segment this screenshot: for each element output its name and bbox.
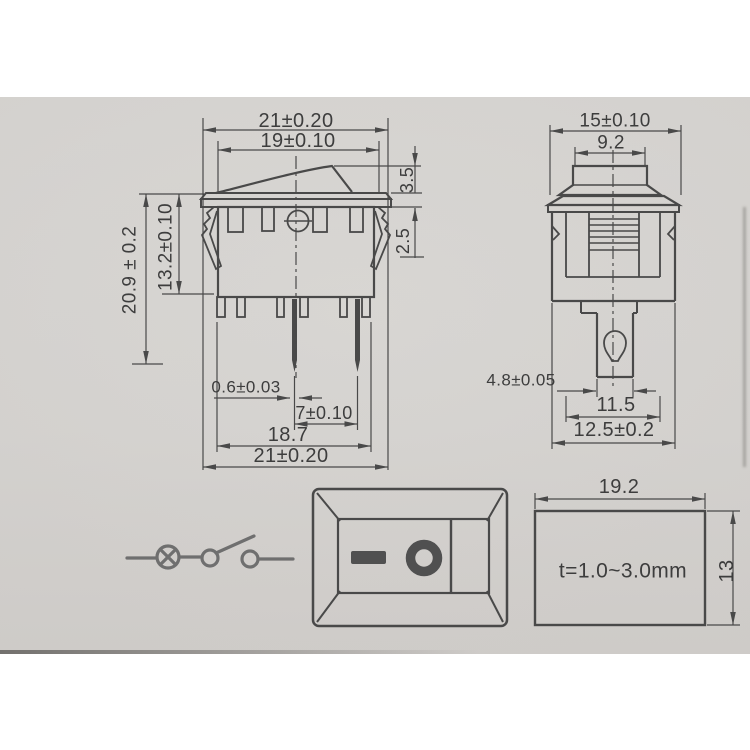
- dim-label-pin-pitch: 7±0.10: [295, 404, 352, 422]
- switch-contact: [242, 551, 258, 567]
- dim-label-body-width: 11.5: [596, 395, 635, 415]
- terminal-pin: [355, 299, 360, 372]
- body-slot: [228, 207, 243, 232]
- drawing-content: 21±0.20 19±0.10 3.5 2.5 20.9 ± 0.2 13.2±…: [0, 0, 750, 750]
- on-symbol: [351, 551, 386, 564]
- dim-label-flange-to-clip: 2.5: [394, 228, 412, 254]
- rocker-face-view: [313, 489, 507, 626]
- terminal-prong: [340, 297, 347, 317]
- dim-label-terminal-span: 18.7: [268, 425, 309, 445]
- dim-label-overall-width-side: 12.5±0.2: [574, 420, 655, 440]
- dim-label-overall-height: 20.9 ± 0.2: [121, 226, 140, 314]
- front-view-dimensions: [132, 118, 424, 470]
- side-body-ribs: [589, 219, 639, 250]
- dim-label-flange-width: 15±0.10: [579, 112, 650, 131]
- circuit-symbol: [127, 536, 293, 568]
- front-view: [132, 118, 424, 470]
- terminal-prong: [237, 297, 245, 317]
- dim-label-pin-thickness: 0.6±0.03: [211, 379, 280, 396]
- dim-label-body-depth: 13.2±0.10: [157, 203, 176, 291]
- panel-thickness-note: t=1.0~3.0mm: [559, 561, 687, 582]
- dim-label-rocker-height: 3.5: [398, 167, 416, 193]
- off-symbol: [411, 545, 438, 572]
- dim-label-cutout-width: 19.2: [599, 477, 640, 497]
- dim-label-terminal-tab-width: 4.8±0.05: [486, 372, 555, 389]
- rocker-actuator-profile: [216, 166, 352, 193]
- dim-label-cutout-height: 13: [717, 559, 737, 582]
- side-actuator: [559, 166, 661, 195]
- photographed-technical-drawing: 21±0.20 19±0.10 3.5 2.5 20.9 ± 0.2 13.2±…: [0, 0, 750, 750]
- body-slot: [350, 207, 363, 232]
- dim-label-overall-width-bottom: 21±0.20: [254, 446, 329, 466]
- body-slot: [262, 207, 274, 231]
- dim-label-actuator-width: 9.2: [597, 134, 625, 153]
- dim-label-rocker-width: 19±0.10: [261, 131, 336, 151]
- dim-label-overall-width-top: 21±0.20: [259, 111, 334, 131]
- body-slot: [313, 207, 327, 232]
- terminal-tab-hole: [604, 331, 626, 361]
- terminal-prong: [362, 297, 370, 317]
- terminal-prong: [217, 297, 225, 317]
- terminal-prong: [277, 297, 284, 317]
- terminal-prong: [300, 297, 308, 317]
